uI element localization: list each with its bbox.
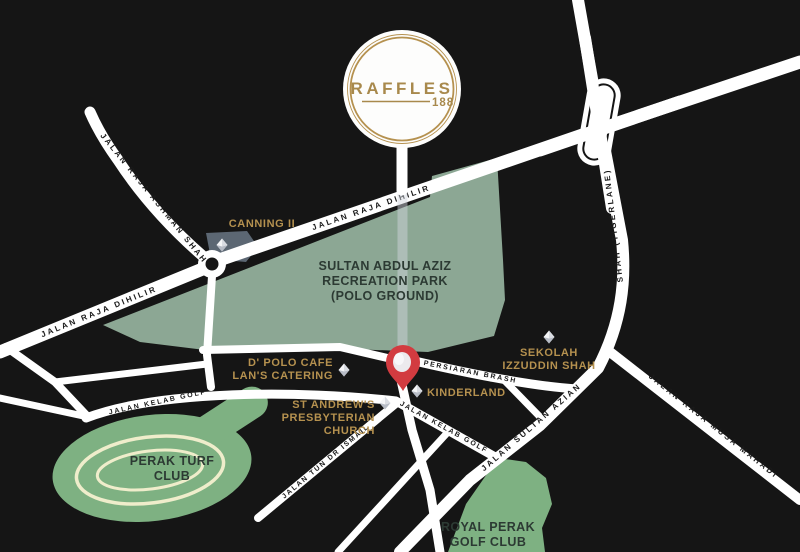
poi-label-sekolah-line1: SEKOLAH [520, 347, 578, 359]
poi-label-kinderland: KINDERLAND [427, 387, 506, 399]
road-from-roundabout-south [207, 276, 212, 387]
poi-label-church-line2: PRESBYTERIAN [282, 412, 375, 424]
brand-number: 188 [432, 97, 454, 109]
poi-label-dpolo-line1: D' POLO CAFE [248, 357, 333, 369]
area-label-park-line3: (POLO GROUND) [331, 289, 439, 303]
brand-name: RAFFLES [351, 79, 454, 98]
location-map: JALAN RAJA ASHMAN SHAH JALAN RAJA DIHILI… [0, 0, 800, 552]
logo-pointer-stem [397, 140, 408, 195]
area-label-golf-line1: ROYAL PERAK [441, 520, 535, 534]
poi-label-sekolah-line2: IZZUDDIN SHAH [502, 360, 595, 372]
poi-label-canning: CANNING II [229, 218, 296, 230]
poi-label-church-line3: CHURCH [324, 425, 375, 437]
location-beam [398, 185, 408, 361]
area-label-golf-line2: GOLF CLUB [450, 535, 527, 549]
area-label-park-line1: SULTAN ABDUL AZIZ [319, 259, 452, 273]
area-label-turf-line2: CLUB [154, 469, 190, 483]
area-label-turf-line1: PERAK TURF [130, 454, 215, 468]
area-label-park-line2: RECREATION PARK [322, 274, 448, 288]
poi-label-dpolo-line2: LAN'S CATERING [232, 370, 333, 382]
poi-label-church-line1: ST ANDREW'S [292, 399, 375, 411]
